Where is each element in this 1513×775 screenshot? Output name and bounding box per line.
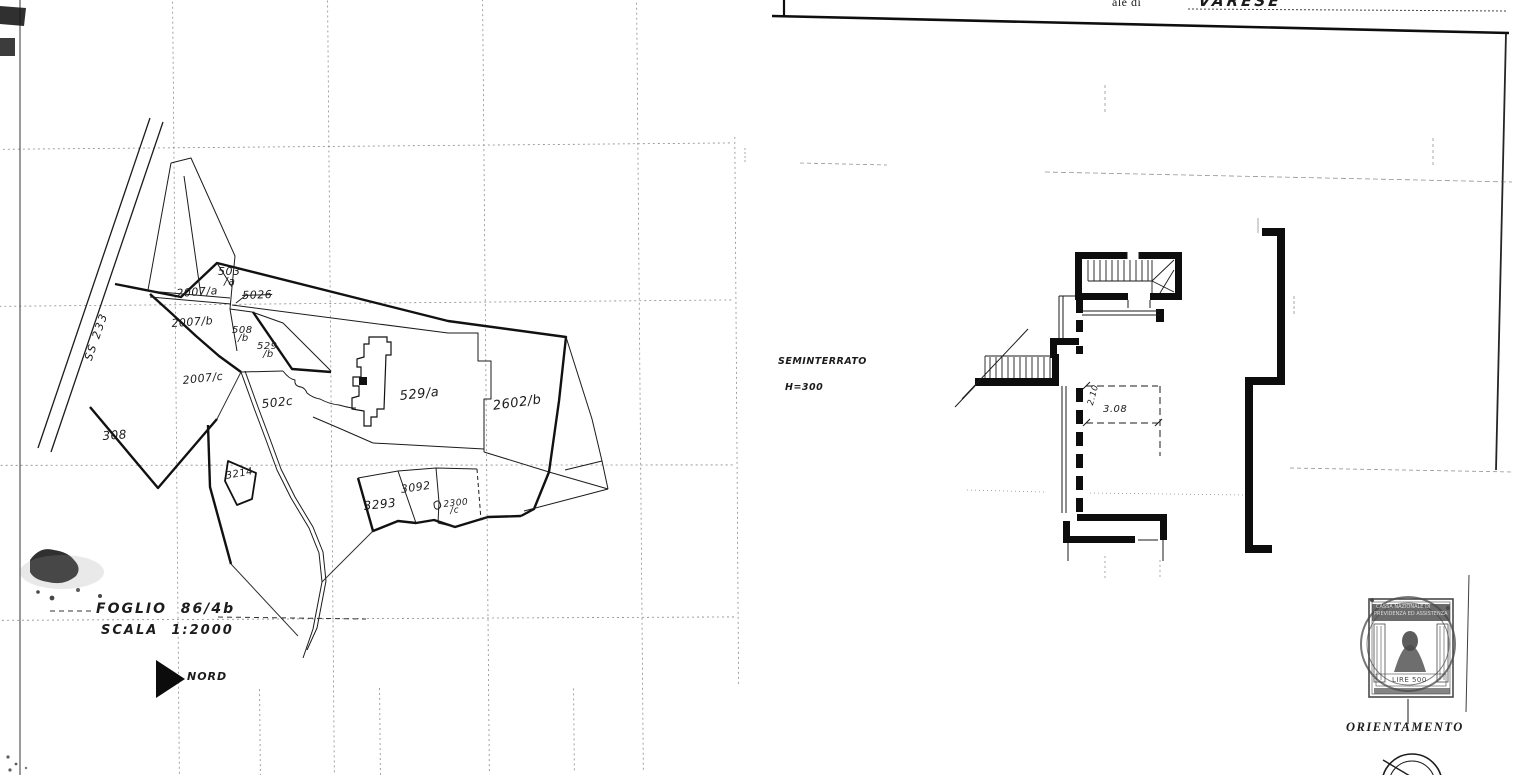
parcel-label-503a: 503/a bbox=[218, 265, 241, 288]
header-city: VARESE bbox=[1197, 0, 1283, 10]
foglio-label: FOGLIO 86/4b bbox=[96, 601, 235, 617]
parcel-label-529b: 529/b bbox=[257, 341, 278, 360]
north-label: NORD bbox=[187, 670, 227, 683]
parcel-boundary-thin bbox=[148, 158, 608, 658]
scan-fold-lines bbox=[745, 85, 1513, 580]
stamp-value: LIRE 500 bbox=[1392, 676, 1427, 684]
parcel-label-2300c: 2300/c bbox=[443, 497, 470, 517]
plan-title: SEMINTERRATO bbox=[778, 356, 867, 367]
compass-icon bbox=[1382, 699, 1447, 775]
stamp-text-line2: PREVIDENZA ED ASSISTENZA bbox=[1374, 611, 1448, 617]
scala-label: SCALA 1:2000 bbox=[101, 623, 234, 638]
map-grid bbox=[0, 0, 740, 775]
building-footprint bbox=[352, 337, 391, 426]
parcel-label-5026: 5026 bbox=[242, 288, 272, 302]
parcel-label-308: 308 bbox=[102, 427, 127, 443]
parcel-label-508b: 508/b bbox=[232, 325, 253, 344]
stamp-text-line1: CASSA NAZIONALE DI bbox=[1376, 604, 1430, 610]
orientation-label: ORIENTAMENTO bbox=[1346, 720, 1464, 735]
north-arrow-icon bbox=[156, 660, 185, 698]
header-fragment: ale di bbox=[1112, 0, 1141, 10]
plan-height-note: H=300 bbox=[785, 382, 823, 393]
document-linework bbox=[0, 0, 1513, 775]
road-ss233 bbox=[38, 118, 163, 452]
scan-artifacts bbox=[0, 6, 441, 772]
scanned-document-page: ale di VARESE SS 233 2007/a 503/a 5026 2… bbox=[0, 0, 1513, 775]
dim-width-label: 3.08 bbox=[1103, 404, 1127, 415]
